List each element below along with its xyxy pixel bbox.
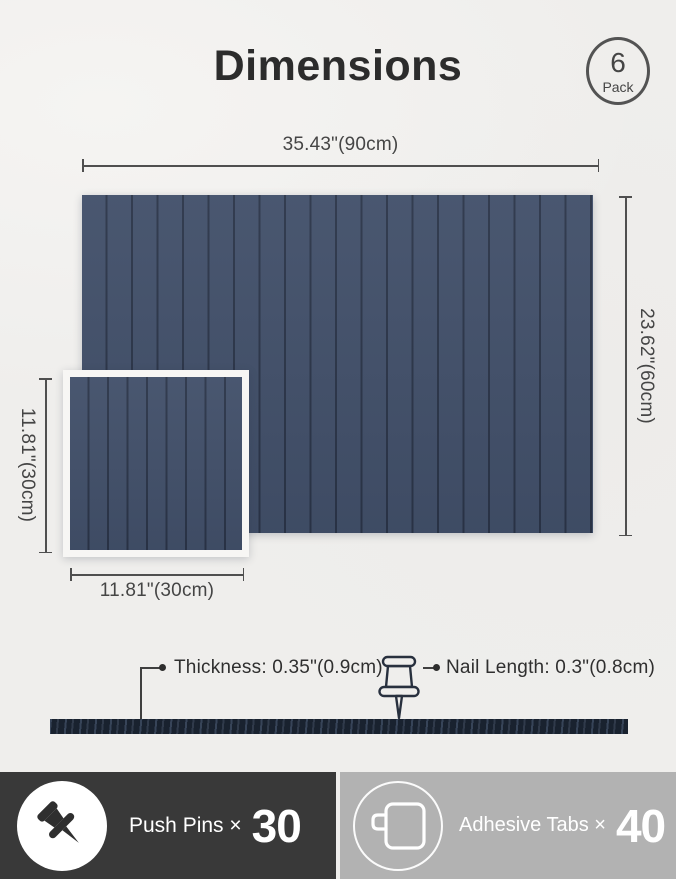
small-height-dimension-tick-bottom [39,552,52,554]
push-pins-label: Push Pins × [129,814,242,838]
push-pins-card: Push Pins × 30 [0,772,336,879]
height-dimension-line [625,196,627,536]
adhesive-tab-icon-circle [353,781,443,871]
push-pins-count: 30 [252,799,301,853]
thickness-label: Thickness: 0.35"(0.9cm) [174,657,383,679]
pack-count-badge: 6 Pack [586,37,650,105]
pack-unit: Pack [602,80,633,94]
nail-length-label: Nail Length: 0.3"(0.8cm) [446,657,655,679]
height-dimension-tick-bottom [619,535,632,537]
small-panel-border [63,370,249,557]
small-height-dimension-tick-top [39,378,52,380]
adhesive-tab-icon [367,795,429,857]
adhesive-tabs-label: Adhesive Tabs × [459,814,606,837]
footer: Push Pins × 30 Adhesive Tabs × 40 [0,772,676,879]
small-panel [70,377,242,550]
small-height-dimension-label: 11.81"(30cm) [16,380,38,550]
width-dimension-tick-left [82,159,84,172]
push-pin-outline-icon [377,655,421,721]
small-width-dimension-line [70,574,244,576]
nail-leader-dot [433,664,440,671]
panel-side-view-bar [50,719,628,734]
height-dimension-tick-top [619,196,632,198]
push-pin-icon [36,800,88,852]
push-pin-icon-circle [17,781,107,871]
page-title: Dimensions [0,42,676,91]
adhesive-tabs-count: 40 [616,799,665,853]
pack-count: 6 [610,49,626,77]
height-dimension-label: 23.62"(60cm) [635,281,657,451]
small-width-dimension-label: 11.81"(30cm) [70,580,244,602]
width-dimension-tick-right [598,159,600,172]
small-height-dimension-line [45,378,47,553]
adhesive-tabs-card: Adhesive Tabs × 40 [340,772,676,879]
thickness-leader-dot [159,664,166,671]
product-dimension-infographic: Dimensions 6 Pack 35.43"(90cm) 23.62"(60… [0,0,676,879]
thickness-leader-horizontal [140,667,160,669]
width-dimension-line [82,165,599,167]
thickness-leader-vertical [140,668,142,719]
width-dimension-label: 35.43"(90cm) [82,134,599,156]
